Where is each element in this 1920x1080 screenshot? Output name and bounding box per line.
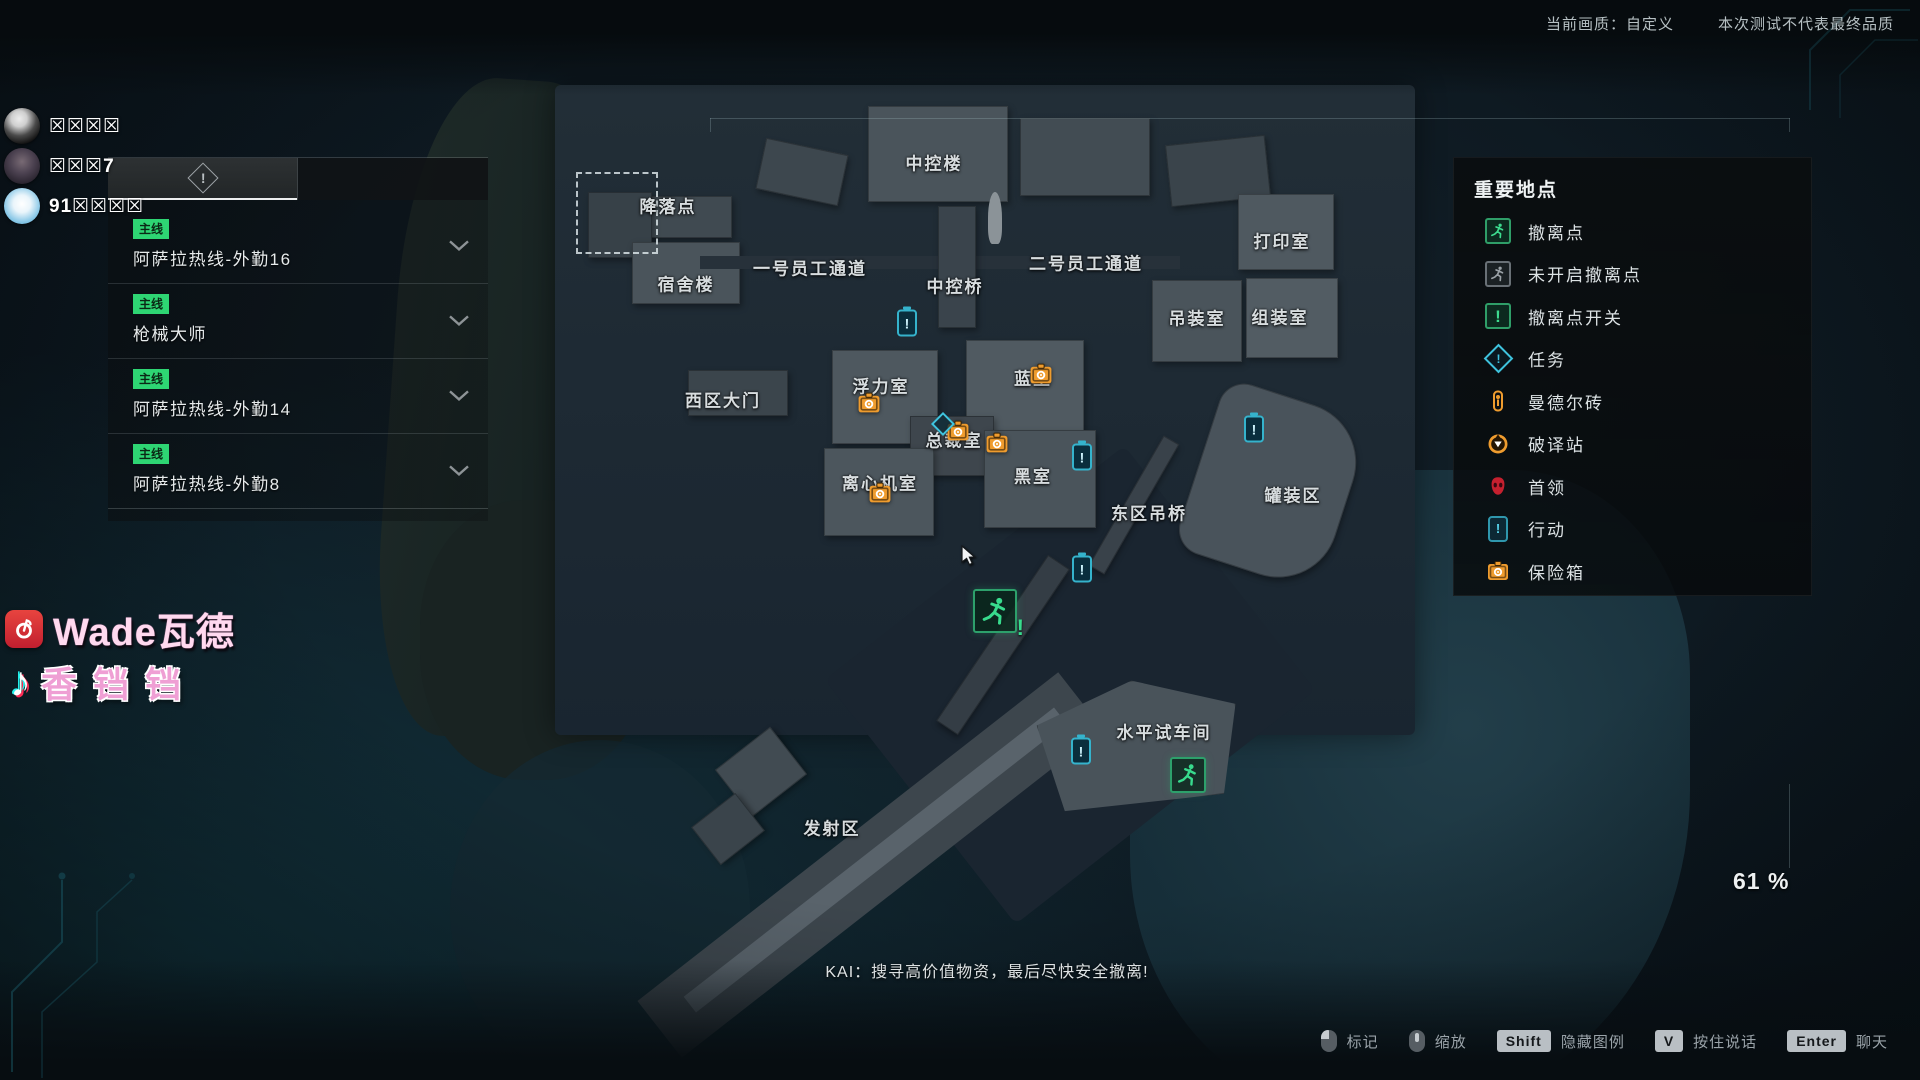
player-row: ☒☒☒7 <box>4 148 115 184</box>
legend-item: ! 任务 <box>1454 338 1811 381</box>
map-frame-zoom-line <box>1789 784 1790 868</box>
map-building <box>938 206 976 328</box>
map-label: 打印室 <box>1254 228 1311 253</box>
legend-label: 未开启撤离点 <box>1528 261 1642 286</box>
map-marker-info[interactable]: ! <box>1072 556 1092 583</box>
player-name: 91☒☒☒☒ <box>49 195 144 218</box>
quest-tag: 主线 <box>133 444 169 464</box>
tiktok-icon: ♪ <box>10 661 31 703</box>
quest-item[interactable]: 主线 阿萨拉热线-外勤14 <box>108 359 488 434</box>
map-frame-left-tick <box>710 118 711 132</box>
key-v: V <box>1655 1030 1683 1052</box>
legend-label: 任务 <box>1528 346 1566 371</box>
chevron-down-icon[interactable] <box>448 314 470 326</box>
hotkey-label: 缩放 <box>1435 1031 1467 1052</box>
hotkey-label: 按住说话 <box>1693 1031 1757 1052</box>
map-marker-safe[interactable] <box>1029 362 1054 387</box>
boss-icon <box>1485 473 1511 499</box>
player-avatar[interactable] <box>4 108 40 144</box>
extraction-active-icon <box>1485 218 1511 244</box>
quest-list: 主线 阿萨拉热线-外勤16 主线 枪械大师 主线 阿萨拉热线-外勤14 主线 阿… <box>108 200 488 521</box>
map-marker-exit[interactable]: ! <box>973 589 1017 633</box>
player-name: ☒☒☒7 <box>49 155 115 178</box>
graphics-quality-label: 当前画质：自定义 <box>1546 13 1674 34</box>
map-label: 中控楼 <box>906 150 963 175</box>
map-marker-info[interactable]: ! <box>1072 444 1092 471</box>
hotkey-zoom[interactable]: 缩放 <box>1409 1030 1467 1052</box>
hotkey-bar: 标记 缩放 Shift 隐藏图例 V 按住说话 Enter 聊天 <box>1321 1030 1888 1052</box>
map-label: 罐装区 <box>1265 482 1322 507</box>
extraction-switch-icon: ! <box>1485 303 1511 329</box>
player-row: 91☒☒☒☒ <box>4 188 144 224</box>
key-enter: Enter <box>1787 1030 1846 1052</box>
legend-label: 行动 <box>1528 516 1566 541</box>
map-label: 中控桥 <box>927 273 984 298</box>
chevron-down-icon[interactable] <box>448 239 470 251</box>
decoder-icon <box>1485 431 1511 457</box>
map-label: 发射区 <box>804 815 861 840</box>
legend-panel: 重要地点 撤离点 未开启撤离点 ! 撤离点开关 ! 任务 曼德尔砖 <box>1453 157 1812 596</box>
map-marker-info[interactable]: ! <box>1244 416 1264 443</box>
mouse-left-click-icon <box>1321 1030 1337 1052</box>
game-map-screen: 中控楼降落点宿舍楼一号员工通道中控桥二号员工通道打印室吊装室组装室西区大门浮力室… <box>0 0 1920 1080</box>
hotkey-hide-legend[interactable]: Shift 隐藏图例 <box>1497 1030 1625 1052</box>
map-marker-info[interactable]: ! <box>897 310 917 337</box>
player-avatar[interactable] <box>4 148 40 184</box>
hotkey-label: 标记 <box>1347 1031 1379 1052</box>
watermark-netease: Wade瓦德 <box>5 601 235 656</box>
map-zoom-percent: 61 % <box>1733 868 1789 895</box>
quest-tabs: ! <box>108 157 488 200</box>
extraction-inactive-icon <box>1485 261 1511 287</box>
safe-icon <box>1485 558 1511 584</box>
legend-label: 撤离点 <box>1528 219 1585 244</box>
legend-item: 未开启撤离点 <box>1454 253 1811 296</box>
map-marker-info[interactable]: ! <box>1071 738 1091 765</box>
map-label: 吊装室 <box>1169 305 1226 330</box>
quest-tag: 主线 <box>133 294 169 314</box>
map-label: 水平试车间 <box>1117 719 1212 744</box>
hotkey-label: 聊天 <box>1856 1031 1888 1052</box>
legend-item: 撤离点 <box>1454 210 1811 253</box>
quest-title: 枪械大师 <box>133 320 438 345</box>
map-label: 降落点 <box>640 193 697 218</box>
quest-diamond-icon: ! <box>187 162 218 193</box>
chevron-down-icon[interactable] <box>448 389 470 401</box>
mandel-brick-icon <box>1485 388 1511 414</box>
map-marker-safe[interactable] <box>857 391 882 416</box>
npc-subtitle: KAI：搜寻高价值物资，最后尽快安全撤离! <box>825 958 1148 982</box>
quest-item[interactable]: 主线 阿萨拉热线-外勤16 <box>108 209 488 284</box>
map-label: 东区吊桥 <box>1111 500 1187 525</box>
map-marker-safe[interactable] <box>868 481 893 506</box>
map-frame-top-line <box>710 118 1790 119</box>
hotkey-push-to-talk[interactable]: V 按住说话 <box>1655 1030 1757 1052</box>
test-build-notice: 本次测试不代表最终品质 <box>1718 13 1894 34</box>
legend-label: 破译站 <box>1528 431 1585 456</box>
legend-label: 保险箱 <box>1528 559 1585 584</box>
map-label: 组装室 <box>1252 304 1309 329</box>
legend-item: ! 撤离点开关 <box>1454 295 1811 338</box>
map-building <box>1020 118 1150 196</box>
netease-music-icon <box>5 610 43 648</box>
map-label: 二号员工通道 <box>1029 250 1143 275</box>
hotkey-label: 隐藏图例 <box>1561 1031 1625 1052</box>
key-shift: Shift <box>1497 1030 1551 1052</box>
player-name: ☒☒☒☒ <box>49 115 121 138</box>
legend-title: 重要地点 <box>1454 158 1811 210</box>
legend-item: 首领 <box>1454 465 1811 508</box>
mouse-cursor <box>961 545 978 567</box>
watermark-tiktok: ♪ 香铛铛 <box>10 656 197 708</box>
watermark-name: 香铛铛 <box>41 656 197 708</box>
quest-tag: 主线 <box>133 369 169 389</box>
task-icon: ! <box>1485 346 1511 372</box>
quest-title: 阿萨拉热线-外勤8 <box>133 470 438 495</box>
chevron-down-icon[interactable] <box>448 464 470 476</box>
legend-label: 曼德尔砖 <box>1528 389 1604 414</box>
hotkey-mark[interactable]: 标记 <box>1321 1030 1379 1052</box>
tab-secondary[interactable] <box>297 158 488 200</box>
quest-item[interactable]: 主线 阿萨拉热线-外勤8 <box>108 434 488 509</box>
map-frame-right-tick <box>1789 118 1790 132</box>
player-row: ☒☒☒☒ <box>4 108 121 144</box>
legend-item: 曼德尔砖 <box>1454 380 1811 423</box>
quest-panel: ! 主线 阿萨拉热线-外勤16 主线 枪械大师 主线 阿萨拉热线-外勤14 主线 <box>108 157 488 521</box>
map-marker-exit[interactable] <box>1170 757 1206 793</box>
legend-item: 保险箱 <box>1454 550 1811 593</box>
watermark-name: Wade瓦德 <box>53 601 235 656</box>
legend-label: 撤离点开关 <box>1528 304 1623 329</box>
quest-item[interactable]: 主线 枪械大师 <box>108 284 488 359</box>
map-label: 宿舍楼 <box>658 271 715 296</box>
hotkey-chat[interactable]: Enter 聊天 <box>1787 1030 1888 1052</box>
map-label: 黑室 <box>1014 463 1052 488</box>
map-label: 一号员工通道 <box>753 255 867 280</box>
map-marker-safe[interactable] <box>985 431 1010 456</box>
player-avatar[interactable] <box>4 188 40 224</box>
mouse-wheel-icon <box>1409 1030 1425 1052</box>
legend-item: ! 行动 <box>1454 508 1811 551</box>
legend-item: 破译站 <box>1454 423 1811 466</box>
map-label: 西区大门 <box>685 387 761 412</box>
top-status-bar: 当前画质：自定义 本次测试不代表最终品质 <box>1546 13 1894 34</box>
rocket-silhouette <box>988 192 1002 244</box>
quest-title: 阿萨拉热线-外勤16 <box>133 245 438 270</box>
quest-title: 阿萨拉热线-外勤14 <box>133 395 438 420</box>
legend-label: 首领 <box>1528 474 1566 499</box>
operation-icon: ! <box>1485 516 1511 542</box>
